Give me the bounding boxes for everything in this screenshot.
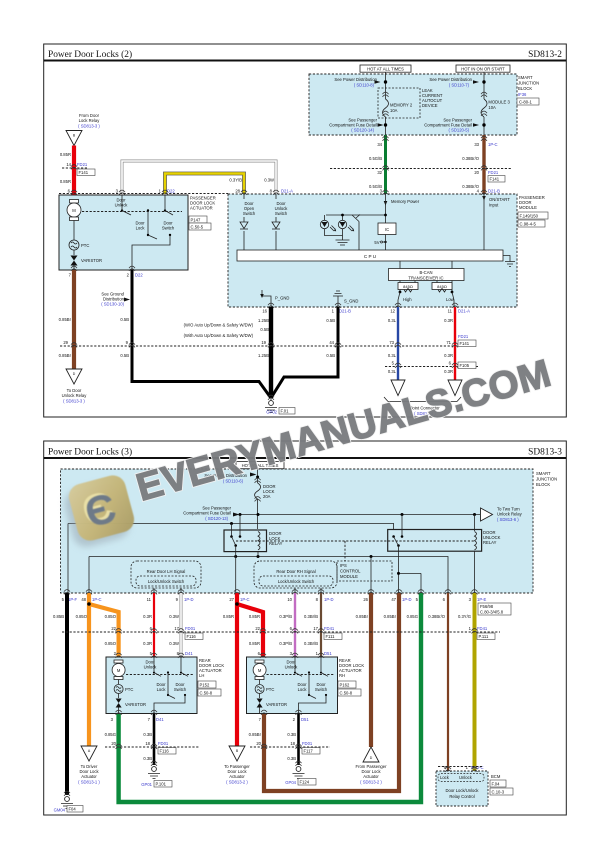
svg-text:RH: RH: [339, 673, 345, 678]
svg-text:0.38Br/O: 0.38Br/O: [428, 614, 446, 619]
svg-text:Input: Input: [489, 203, 499, 208]
svg-text:FD21: FD21: [77, 162, 88, 167]
svg-text:33: 33: [474, 142, 479, 147]
svg-text:F105: F105: [460, 363, 470, 368]
svg-text:26: 26: [363, 597, 368, 602]
svg-text:0.85G: 0.85G: [407, 614, 418, 619]
svg-text:( SD813-3 ): ( SD813-3 ): [63, 399, 85, 404]
svg-text:1.25B: 1.25B: [258, 353, 269, 358]
svg-text:0.3B: 0.3B: [143, 732, 152, 737]
svg-text:D41: D41: [156, 717, 164, 722]
svg-text:Power Door Locks (2): Power Door Locks (2): [48, 49, 132, 60]
svg-text:D51: D51: [301, 717, 309, 722]
svg-text:Unlock: Unlock: [459, 775, 473, 780]
svg-text:FD41: FD41: [324, 626, 335, 631]
svg-text:0.85O: 0.85O: [105, 641, 117, 646]
svg-text:0.3W: 0.3W: [169, 641, 179, 646]
svg-text:0.5B: 0.5B: [120, 317, 129, 322]
svg-text:See Power Distribution: See Power Distribution: [429, 77, 472, 82]
svg-text:0.3B: 0.3B: [143, 756, 152, 761]
svg-text:11: 11: [147, 597, 152, 602]
svg-text:1P-D: 1P-D: [402, 597, 412, 602]
svg-text:MEMORY 2: MEMORY 2: [390, 103, 413, 108]
svg-text:FD01: FD01: [158, 741, 169, 746]
svg-text:0.3Y/B: 0.3Y/B: [229, 178, 242, 183]
svg-text:18: 18: [290, 741, 295, 746]
svg-text:C.50-8: C.50-8: [340, 690, 353, 695]
svg-text:( SD120-13): ( SD120-13): [205, 516, 228, 521]
svg-text:Switch: Switch: [275, 211, 288, 216]
svg-text:Unlock: Unlock: [115, 203, 129, 208]
svg-text:F116: F116: [160, 749, 170, 754]
svg-text:1P-E: 1P-E: [477, 597, 487, 602]
svg-text:F.04: F.04: [492, 781, 501, 786]
svg-text:GP01: GP01: [141, 782, 152, 787]
svg-text:1P-C: 1P-C: [488, 142, 498, 147]
svg-text:Actuator: Actuator: [363, 774, 379, 779]
svg-text:0.85R: 0.85R: [60, 179, 71, 184]
svg-text:PTC: PTC: [125, 687, 133, 692]
svg-text:Switch: Switch: [243, 211, 256, 216]
svg-text:0.5G/B: 0.5G/B: [369, 156, 382, 161]
svg-text:D21-B: D21-B: [339, 309, 351, 314]
svg-text:GP04: GP04: [285, 780, 296, 785]
svg-text:Switch: Switch: [174, 687, 187, 692]
svg-text:VARISTOR: VARISTOR: [266, 702, 287, 707]
svg-text:F116: F116: [187, 634, 197, 639]
svg-text:SMART: SMART: [536, 471, 551, 476]
svg-text:( SD813-1 ): ( SD813-1 ): [78, 780, 100, 785]
svg-text:P.111: P.111: [479, 634, 489, 639]
svg-text:( SD110-7): ( SD110-7): [449, 83, 470, 88]
svg-text:0.3L: 0.3L: [388, 369, 397, 374]
svg-text:MODULE 3: MODULE 3: [488, 100, 510, 105]
svg-text:PTC: PTC: [81, 243, 89, 248]
svg-text:0.5B: 0.5B: [326, 353, 335, 358]
svg-text:( SD110-8): ( SD110-8): [354, 83, 375, 88]
svg-text:S_GND: S_GND: [344, 299, 358, 304]
svg-text:1P-D: 1P-D: [324, 597, 334, 602]
svg-text:0.5B: 0.5B: [326, 318, 335, 323]
svg-text:CONTROL: CONTROL: [340, 569, 361, 574]
svg-text:0.85Br: 0.85Br: [59, 353, 72, 358]
svg-text:Lock: Lock: [440, 775, 450, 780]
svg-text:10A: 10A: [488, 105, 496, 110]
svg-text:0.3L: 0.3L: [388, 353, 397, 358]
svg-text:0.3P/B: 0.3P/B: [279, 641, 292, 646]
svg-text:0.85R: 0.85R: [249, 614, 260, 619]
svg-text:Memory Power: Memory Power: [391, 199, 420, 204]
svg-text:0.38Br/O: 0.38Br/O: [462, 156, 480, 161]
svg-text:F141: F141: [460, 341, 470, 346]
svg-text:0.3W: 0.3W: [264, 178, 274, 183]
svg-text:C-80-1: C-80-1: [519, 99, 532, 104]
svg-text:0.3Br/B: 0.3Br/B: [304, 641, 318, 646]
svg-text:RELAY: RELAY: [269, 541, 283, 546]
svg-text:C.10-3: C.10-3: [492, 789, 505, 794]
svg-text:Lock Relay: Lock Relay: [79, 118, 101, 123]
svg-text:SMART: SMART: [518, 75, 533, 80]
svg-text:C.80-3/4/5.8: C.80-3/4/5.8: [480, 610, 504, 615]
svg-text:0.85R: 0.85R: [249, 641, 260, 646]
svg-text:Actuator: Actuator: [81, 774, 97, 779]
svg-text:0.85R: 0.85R: [223, 614, 234, 619]
svg-text:0.5B: 0.5B: [120, 353, 129, 358]
svg-text:17: 17: [174, 626, 179, 631]
svg-text:0.3R: 0.3R: [444, 318, 453, 323]
svg-text:D21-A: D21-A: [458, 309, 470, 314]
svg-text:( SD813-2 ): ( SD813-2 ): [360, 780, 382, 785]
svg-text:Unlock: Unlock: [285, 665, 299, 670]
svg-text:P147: P147: [191, 217, 201, 222]
svg-text:JUNCTION: JUNCTION: [518, 81, 539, 86]
svg-text:SD813-3: SD813-3: [528, 448, 562, 458]
svg-text:GP02: GP02: [266, 410, 277, 415]
svg-text:34: 34: [377, 142, 382, 147]
svg-text:0.3Y/G: 0.3Y/G: [458, 614, 471, 619]
svg-text:VARISTOR: VARISTOR: [81, 258, 102, 263]
svg-text:Low: Low: [446, 297, 455, 302]
svg-text:11: 11: [448, 309, 453, 314]
svg-text:F117: F117: [304, 749, 314, 754]
svg-text:0.3B: 0.3B: [287, 756, 296, 761]
svg-text:( SD120-14): ( SD120-14): [351, 128, 374, 133]
svg-text:Unlock Relay: Unlock Relay: [62, 393, 88, 398]
svg-text:Lock: Lock: [298, 687, 308, 692]
svg-text:10A: 10A: [390, 108, 398, 113]
svg-text:P152: P152: [200, 682, 210, 687]
svg-text:20A: 20A: [263, 494, 271, 499]
svg-text:C.50-8: C.50-8: [200, 690, 213, 695]
svg-text:F111: F111: [326, 634, 336, 639]
svg-text:FD41: FD41: [477, 626, 488, 631]
svg-text:18: 18: [145, 741, 150, 746]
svg-text:See Power Distribution: See Power Distribution: [334, 77, 377, 82]
svg-text:P.101: P.101: [156, 782, 167, 787]
svg-text:0.85B: 0.85B: [53, 614, 64, 619]
svg-text:TRANSCEIVER IC: TRANSCEIVER IC: [408, 275, 443, 280]
svg-text:20: 20: [474, 170, 479, 175]
svg-text:D22: D22: [135, 273, 143, 278]
svg-text:Power Door Locks (3): Power Door Locks (3): [48, 447, 132, 458]
svg-text:73: 73: [389, 340, 394, 345]
svg-text:M: M: [72, 208, 76, 213]
svg-text:C.98-4-5: C.98-4-5: [520, 221, 537, 226]
svg-text:Door Lock/Unlock: Door Lock/Unlock: [445, 788, 479, 793]
svg-text:0.3P/B: 0.3P/B: [279, 614, 292, 619]
svg-text:HOT IN ON OR START: HOT IN ON OR START: [461, 67, 505, 72]
svg-text:IPS: IPS: [340, 563, 347, 568]
svg-text:ON/START: ON/START: [489, 197, 510, 202]
svg-text:1.25B: 1.25B: [258, 318, 269, 323]
svg-text:Unlock Relay: Unlock Relay: [497, 512, 523, 517]
svg-text:0.3R: 0.3R: [444, 369, 453, 374]
svg-text:M: M: [258, 668, 262, 673]
svg-text:BLOCK: BLOCK: [518, 86, 532, 91]
svg-text:(W/O Auto Up/Down & Safety W/D: (W/O Auto Up/Down & Safety W/DW): [184, 323, 254, 328]
svg-text:F04: F04: [69, 807, 77, 812]
svg-text:B-CAN: B-CAN: [419, 270, 432, 275]
svg-text:12: 12: [390, 309, 395, 314]
svg-text:32: 32: [377, 170, 382, 175]
svg-text:FD01: FD01: [185, 626, 196, 631]
svg-text:RELAY: RELAY: [483, 540, 497, 545]
svg-text:P_GND: P_GND: [275, 296, 289, 301]
svg-text:IF36: IF36: [518, 92, 527, 97]
svg-text:Lock/Unlock Switch: Lock/Unlock Switch: [148, 579, 185, 584]
svg-text:Actuator: Actuator: [229, 774, 245, 779]
svg-text:1P-C: 1P-C: [92, 597, 102, 602]
svg-text:Lock/Unlock Switch: Lock/Unlock Switch: [278, 579, 315, 584]
svg-text:F.01: F.01: [281, 409, 290, 414]
svg-text:PTC: PTC: [266, 687, 274, 692]
svg-text:LH: LH: [199, 673, 204, 678]
svg-text:0.85Br: 0.85Br: [59, 317, 72, 322]
svg-text:DEVICE: DEVICE: [422, 103, 438, 108]
svg-text:( SD813-6 ): ( SD813-6 ): [497, 517, 519, 522]
svg-text:MODULE: MODULE: [340, 574, 358, 579]
svg-text:0.85R: 0.85R: [60, 152, 71, 157]
svg-text:Lock: Lock: [157, 687, 167, 692]
svg-text:1P-D: 1P-D: [184, 597, 194, 602]
svg-text:27: 27: [229, 597, 234, 602]
svg-text:D21-B: D21-B: [488, 189, 500, 194]
svg-text:D22: D22: [167, 189, 175, 194]
svg-text:Unlock: Unlock: [144, 665, 158, 670]
svg-text:Switch: Switch: [315, 687, 328, 692]
svg-text:5V: 5V: [374, 240, 379, 245]
svg-text:71: 71: [446, 340, 451, 345]
svg-text:47: 47: [391, 597, 396, 602]
svg-text:10: 10: [287, 597, 292, 602]
svg-text:(With Auto Up/Down & Safety W/: (With Auto Up/Down & Safety W/DW): [184, 333, 254, 338]
svg-text:GM04: GM04: [54, 808, 66, 813]
svg-text:MODULE: MODULE: [519, 205, 537, 210]
svg-text:0.3Br/B: 0.3Br/B: [304, 614, 318, 619]
svg-text:D41: D41: [185, 651, 193, 656]
svg-text:0.3B: 0.3B: [287, 732, 296, 737]
svg-text:C P U: C P U: [364, 254, 376, 259]
svg-text:BLOCK: BLOCK: [536, 482, 550, 487]
svg-text:FD21: FD21: [458, 334, 469, 339]
svg-text:0.85G: 0.85G: [105, 732, 116, 737]
svg-text:FD01: FD01: [302, 741, 313, 746]
svg-text:JUNCTION: JUNCTION: [536, 477, 557, 482]
svg-text:0.85Br: 0.85Br: [356, 614, 369, 619]
svg-text:28: 28: [235, 189, 240, 194]
svg-text:( SD813-2 ): ( SD813-2 ): [226, 780, 248, 785]
svg-text:0.3R: 0.3R: [143, 614, 152, 619]
svg-text:0.85O: 0.85O: [76, 614, 88, 619]
svg-text:0.85Br: 0.85Br: [249, 732, 262, 737]
svg-text:Rear Door RH Signal: Rear Door RH Signal: [276, 569, 315, 574]
svg-text:M: M: [117, 668, 121, 673]
svg-text:0.3R: 0.3R: [444, 353, 453, 358]
svg-text:29: 29: [63, 340, 68, 345]
svg-text:0.85Br: 0.85Br: [384, 614, 397, 619]
svg-text:F141: F141: [490, 177, 500, 182]
svg-text:FD21: FD21: [488, 170, 499, 175]
svg-text:Lock: Lock: [136, 226, 146, 231]
svg-text:20: 20: [256, 741, 261, 746]
svg-text:0.85O: 0.85O: [105, 614, 117, 619]
svg-text:C.50-5: C.50-5: [191, 224, 204, 229]
svg-text:High: High: [403, 297, 412, 302]
svg-text:1P-F: 1P-F: [68, 597, 78, 602]
svg-text:( SD120-5): ( SD120-5): [449, 128, 470, 133]
svg-text:BCM: BCM: [491, 774, 501, 779]
svg-text:16: 16: [262, 309, 267, 314]
svg-text:19: 19: [261, 340, 266, 345]
svg-text:D21-A: D21-A: [281, 189, 293, 194]
svg-text:0.3R: 0.3R: [143, 641, 152, 646]
svg-text:IC: IC: [385, 227, 389, 232]
svg-text:( SD813-3 ): ( SD813-3 ): [78, 124, 100, 129]
svg-text:Compartment Fuse Detail: Compartment Fuse Detail: [183, 511, 231, 516]
svg-text:0.5B: 0.5B: [260, 327, 269, 332]
svg-text:Relay Control: Relay Control: [449, 794, 474, 799]
svg-text:Switch: Switch: [162, 226, 175, 231]
svg-text:VARISTOR: VARISTOR: [125, 702, 146, 707]
svg-text:F.149/150: F.149/150: [520, 213, 539, 218]
svg-text:HOT AT ALL TIMES: HOT AT ALL TIMES: [367, 67, 404, 72]
svg-text:SD813-2: SD813-2: [528, 50, 562, 60]
svg-text:0.3L: 0.3L: [388, 318, 397, 323]
svg-text:F56/98: F56/98: [480, 604, 494, 609]
svg-text:1P-C: 1P-C: [240, 597, 250, 602]
svg-text:48: 48: [81, 597, 86, 602]
svg-text:P162: P162: [340, 682, 350, 687]
svg-text:0.3W: 0.3W: [169, 614, 179, 619]
svg-text:ACTUATOR: ACTUATOR: [190, 206, 213, 211]
svg-text:F141: F141: [79, 170, 89, 175]
svg-text:D51: D51: [324, 651, 332, 656]
svg-text:F124: F124: [300, 780, 310, 785]
svg-text:( SD130-10): ( SD130-10): [101, 302, 124, 307]
svg-text:44: 44: [329, 340, 334, 345]
svg-text:Rear Door LH Signal: Rear Door LH Signal: [147, 569, 186, 574]
